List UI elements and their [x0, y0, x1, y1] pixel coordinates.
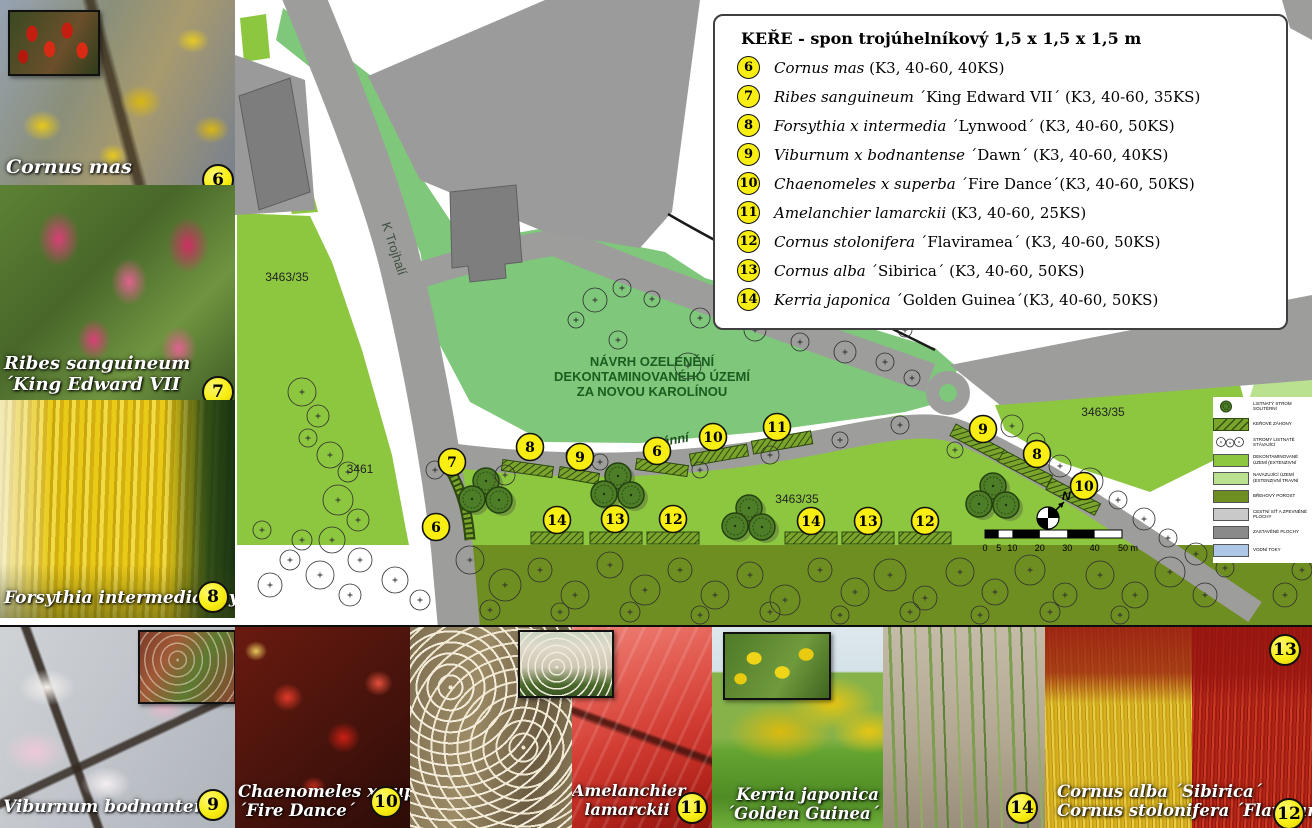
- map-legend-item: DEKONTAMINOVANÉ ÚZEMÍ (EXTENZIVNÍ TRAVNÍ…: [1213, 451, 1312, 469]
- map-marker-7: 7: [439, 449, 466, 476]
- photo-caption: Amelanchier lamarckii: [572, 782, 682, 820]
- scale-label: 5: [996, 543, 1001, 553]
- map-legend-item: ZASTAVĚNÉ PLOCHY: [1213, 523, 1312, 541]
- scale-label: 40: [1090, 543, 1100, 553]
- badge-13: 13: [1269, 634, 1301, 666]
- photo-viburnum-bodnantense: Viburnum bodnantense ´Dawn 9: [0, 625, 235, 828]
- map-legend-swatch: [1213, 454, 1249, 467]
- map-legend-label: STROMY LISTNATÉ STÁVAJÍCÍ: [1253, 437, 1310, 448]
- legend-item-label: Cornus mas (K3, 40-60, 40KS): [774, 59, 1004, 77]
- map-legend-label: VODNÍ TOKY: [1253, 547, 1310, 553]
- map-legend-label: DEKONTAMINOVANÉ ÚZEMÍ (EXTENZIVNÍ TRAVNÍ…: [1253, 454, 1310, 466]
- svg-text:9: 9: [978, 422, 988, 438]
- svg-text:12: 12: [915, 514, 934, 530]
- map-marker-14: 14: [544, 507, 571, 534]
- map-legend-label: BŘEHOVÝ POROST: [1253, 493, 1310, 499]
- map-legend-label: NAVAZUJÍCÍ ÚZEMÍ (EXTENZIVNÍ TRAVNÍ PORO…: [1253, 472, 1310, 484]
- svg-text:N: N: [1062, 489, 1071, 503]
- svg-text:10: 10: [1074, 479, 1094, 495]
- map-legend-item: LISTNATÝ STROM SOLITÉRNÍ: [1213, 397, 1312, 415]
- map-marker-12: 12: [912, 508, 939, 535]
- map-marker-6: 6: [644, 438, 671, 465]
- caption-line: lamarckii: [572, 801, 682, 820]
- shrub-legend-box: KEŘE - spon trojúhelníkový 1,5 x 1,5 x 1…: [713, 14, 1288, 330]
- map-marker-13: 13: [602, 506, 629, 533]
- photo-caption: Cornus mas: [6, 156, 132, 178]
- legend-item: 10Chaenomeles x superba ´Fire Dance´(K3,…: [715, 169, 1286, 198]
- legend-item: 9Viburnum x bodnantense ´Dawn´ (K3, 40-6…: [715, 140, 1286, 169]
- scale-label: 10: [1007, 543, 1017, 553]
- legend-items: 6Cornus mas (K3, 40-60, 40KS)7Ribes sang…: [715, 53, 1286, 314]
- map-marker-9: 9: [567, 444, 594, 471]
- svg-text:10: 10: [703, 430, 723, 446]
- caption-line: Kerria japonica: [726, 785, 879, 804]
- map-marker-12: 12: [660, 506, 687, 533]
- svg-text:11: 11: [767, 420, 786, 436]
- legend-item-badge: 12: [737, 230, 760, 253]
- badge-14: 14: [1006, 792, 1038, 824]
- map-legend-swatch: [1213, 490, 1249, 503]
- map-marker-10: 10: [1071, 473, 1098, 500]
- svg-text:6: 6: [431, 520, 441, 536]
- scale-label: 30: [1062, 543, 1072, 553]
- photo-chaenomeles: Chaenomeles x superba ´Fire Dance´ 10: [235, 625, 410, 828]
- badge-6: 6: [202, 164, 234, 185]
- legend-item-badge: 7: [737, 85, 760, 108]
- svg-text:12: 12: [663, 512, 682, 528]
- legend-title: KEŘE - spon trojúhelníkový 1,5 x 1,5 x 1…: [741, 29, 1286, 48]
- map-marker-10: 10: [700, 424, 727, 451]
- badge-12: 12: [1273, 798, 1305, 828]
- photo-caption: Ribes sanguineum ´King Edward VII: [4, 353, 190, 395]
- photo-inset-kerria-flowers: [723, 632, 831, 700]
- legend-item-label: Amelanchier lamarckii (K3, 40-60, 25KS): [774, 204, 1086, 222]
- photo-cornus-stems: Cornus alba ´Sibirica´ Cornus stolonifer…: [1045, 625, 1312, 828]
- map-legend-label: LISTNATÝ STROM SOLITÉRNÍ: [1253, 401, 1310, 412]
- legend-item-label: Viburnum x bodnantense ´Dawn´ (K3, 40-60…: [774, 146, 1168, 164]
- map-title-line3: ZA NOVOU KAROLÍNOU: [577, 384, 727, 399]
- legend-item-label: Kerria japonica ´Golden Guinea´(K3, 40-6…: [774, 291, 1158, 309]
- photo-caption: Kerria japonica ´Golden Guinea´: [726, 785, 879, 824]
- map-legend-swatch: [1213, 472, 1249, 485]
- badge-11: 11: [676, 792, 708, 824]
- red-top-band: [1045, 627, 1312, 703]
- map-marker-9: 9: [970, 416, 997, 443]
- svg-text:6: 6: [652, 444, 662, 460]
- legend-item: 14Kerria japonica ´Golden Guinea´(K3, 40…: [715, 285, 1286, 314]
- map-legend-item: NAVAZUJÍCÍ ÚZEMÍ (EXTENZIVNÍ TRAVNÍ PORO…: [1213, 469, 1312, 487]
- map-marker-14: 14: [798, 508, 825, 535]
- map-legend-swatch: [1213, 526, 1249, 539]
- map-marker-13: 13: [855, 508, 882, 535]
- map-marker-8: 8: [517, 434, 544, 461]
- map-legend-swatch: [1213, 400, 1249, 413]
- parcel-label: 3463/35: [265, 270, 309, 284]
- map-legend-swatch: [1213, 418, 1249, 431]
- photo-kerria: Kerria japonica ´Golden Guinea´: [712, 625, 883, 828]
- planting-plan-sheet: NÁVRH OZELENĚNÍ DEKONTAMINOVANÉHO ÚZEMÍ …: [0, 0, 1312, 828]
- parcel-label: 3463/35: [1081, 405, 1125, 419]
- photo-cornus-mas: Cornus mas 6: [0, 0, 235, 185]
- scale-label: 0: [982, 543, 987, 553]
- legend-item-label: Chaenomeles x superba ´Fire Dance´(K3, 4…: [774, 175, 1195, 193]
- legend-item: 8Forsythia x intermedia ´Lynwood´ (K3, 4…: [715, 111, 1286, 140]
- badge-7: 7: [202, 376, 234, 400]
- legend-item-badge: 14: [737, 288, 760, 311]
- legend-item-badge: 8: [737, 114, 760, 137]
- map-title-line1: NÁVRH OZELENĚNÍ: [590, 354, 715, 369]
- map-legend-item: KEŘOVÉ ZÁHONY: [1213, 415, 1312, 433]
- map-legend-label: ZASTAVĚNÉ PLOCHY: [1253, 529, 1310, 535]
- svg-text:13: 13: [858, 514, 877, 530]
- map-marker-6: 6: [423, 514, 450, 541]
- caption-line: Cornus alba ´Sibirica´: [1057, 782, 1312, 801]
- parcel-label: 3463/35: [775, 492, 819, 506]
- legend-item: 13Cornus alba ´Sibirica´ (K3, 40-60, 50K…: [715, 256, 1286, 285]
- legend-item-label: Ribes sanguineum ´King Edward VII´ (K3, …: [774, 88, 1200, 106]
- caption-line: ´King Edward VII: [4, 374, 190, 395]
- map-legend-item: CESTNÍ SÍŤ A ZPEVNĚNÉ PLOCHY: [1213, 505, 1312, 523]
- photo-forsythia: Forsythia intermedia ´Lynwood 8: [0, 400, 235, 618]
- svg-text:14: 14: [547, 513, 567, 529]
- parcel-label: 3461: [347, 462, 374, 476]
- badge-9: 9: [197, 789, 229, 821]
- map-marker-8: 8: [1024, 441, 1051, 468]
- photo-inset-viburnum-leaves: [138, 630, 235, 704]
- photo-green-stems: 14: [883, 625, 1045, 828]
- svg-text:13: 13: [605, 512, 624, 528]
- area-green-sliver: [240, 14, 270, 62]
- roundabout-island: [939, 384, 957, 402]
- map-legend-item: BŘEHOVÝ POROST: [1213, 487, 1312, 505]
- map-legend-item: STROMY LISTNATÉ STÁVAJÍCÍ: [1213, 433, 1312, 451]
- map-legend-swatch: [1213, 436, 1249, 449]
- photo-inset-amelanchier-hedge: [518, 630, 614, 698]
- badge-8: 8: [197, 581, 229, 613]
- svg-text:7: 7: [447, 455, 457, 471]
- legend-item-badge: 9: [737, 143, 760, 166]
- map-marker-11: 11: [764, 414, 791, 441]
- legend-item-label: Cornus alba ´Sibirica´ (K3, 40-60, 50KS): [774, 262, 1084, 280]
- legend-item-label: Forsythia x intermedia ´Lynwood´ (K3, 40…: [774, 117, 1175, 135]
- svg-text:8: 8: [525, 440, 535, 456]
- legend-item-badge: 13: [737, 259, 760, 282]
- map-legend-item: VODNÍ TOKY: [1213, 541, 1312, 559]
- legend-item: 6Cornus mas (K3, 40-60, 40KS): [715, 53, 1286, 82]
- svg-text:14: 14: [801, 514, 821, 530]
- svg-text:9: 9: [575, 450, 585, 466]
- photo-ribes-sanguineum: Ribes sanguineum ´King Edward VII 7: [0, 185, 235, 400]
- legend-item: 12Cornus stolonifera ´Flaviramea´ (K3, 4…: [715, 227, 1286, 256]
- map-legend-swatch: [1213, 508, 1249, 521]
- map-symbol-legend: LISTNATÝ STROM SOLITÉRNÍKEŘOVÉ ZÁHONYSTR…: [1213, 397, 1312, 563]
- legend-item-label: Cornus stolonifera ´Flaviramea´ (K3, 40-…: [774, 233, 1161, 251]
- legend-item-badge: 10: [737, 172, 760, 195]
- svg-text:8: 8: [1032, 447, 1042, 463]
- scale-label: 20: [1035, 543, 1045, 553]
- map-title-line2: DEKONTAMINOVANÉHO ÚZEMÍ: [554, 369, 750, 384]
- legend-item-badge: 6: [737, 56, 760, 79]
- legend-item: 7Ribes sanguineum ´King Edward VII´ (K3,…: [715, 82, 1286, 111]
- photo-inset-cornus-fruit: [8, 10, 100, 76]
- scale-label: 50 m: [1118, 543, 1138, 553]
- badge-10: 10: [370, 786, 402, 818]
- legend-item: 11Amelanchier lamarckii (K3, 40-60, 25KS…: [715, 198, 1286, 227]
- legend-item-badge: 11: [737, 201, 760, 224]
- map-legend-label: CESTNÍ SÍŤ A ZPEVNĚNÉ PLOCHY: [1253, 509, 1310, 520]
- map-legend-label: KEŘOVÉ ZÁHONY: [1253, 421, 1310, 427]
- caption-line: Amelanchier: [572, 782, 682, 801]
- caption-line: ´Golden Guinea´: [726, 804, 879, 823]
- caption-line: Ribes sanguineum: [4, 353, 190, 374]
- map-legend-swatch: [1213, 544, 1249, 557]
